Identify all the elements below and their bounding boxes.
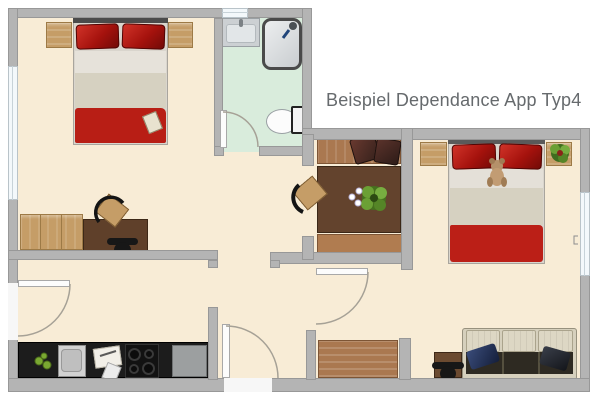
wall-hall-left-stub bbox=[208, 260, 218, 268]
bed-blanket-light bbox=[75, 73, 166, 108]
wall-hall-left bbox=[208, 307, 218, 380]
kitchen-sink bbox=[58, 345, 86, 377]
burner bbox=[142, 362, 155, 375]
headboard bbox=[73, 18, 168, 23]
nightstand bbox=[46, 22, 72, 48]
bed-blanket-light bbox=[450, 188, 543, 225]
window-bathroom bbox=[222, 8, 248, 18]
wall-bedroom-right-left bbox=[401, 128, 413, 270]
bed-pillow bbox=[76, 23, 120, 49]
wall-bottom bbox=[8, 378, 590, 392]
wall-dining-hall bbox=[270, 252, 407, 264]
nightstand-with-plant bbox=[546, 142, 572, 166]
door-leaf-bathroom bbox=[220, 110, 227, 148]
wall-dining-left-upper bbox=[302, 134, 314, 166]
wall-bedroom-living bbox=[8, 250, 218, 260]
sofa-back-cushion bbox=[502, 330, 536, 352]
door-leaf-hall-sofa bbox=[316, 268, 368, 275]
dresser bbox=[20, 214, 83, 250]
window-left bbox=[8, 66, 18, 200]
washbasin bbox=[222, 18, 260, 47]
window-right bbox=[580, 192, 590, 276]
door-leaf-entrance bbox=[222, 324, 230, 378]
wooden-bench-vestibule bbox=[318, 340, 398, 378]
wall-stub-sofa bbox=[399, 338, 411, 380]
bed-blanket-red bbox=[450, 225, 543, 262]
counter-end-unit bbox=[172, 345, 207, 377]
shower bbox=[262, 18, 302, 70]
bed-sheet bbox=[450, 169, 543, 188]
bed-pillow bbox=[499, 143, 543, 169]
wall-top bbox=[8, 8, 312, 18]
burner bbox=[144, 349, 154, 359]
double-bed-right bbox=[448, 140, 545, 264]
faucet bbox=[239, 19, 243, 27]
bed-pillow bbox=[122, 23, 166, 49]
double-bed-left bbox=[73, 18, 168, 145]
nightstand bbox=[168, 22, 193, 48]
wall-hall-sofa bbox=[306, 330, 316, 380]
bed-sheet bbox=[75, 51, 166, 73]
burner bbox=[128, 348, 141, 361]
dining-table bbox=[317, 166, 401, 233]
door-leaf-terrace bbox=[18, 280, 70, 287]
wall-top-right-block bbox=[302, 128, 590, 140]
wall-dining-hall-cap bbox=[270, 260, 280, 268]
door-opening-entrance bbox=[224, 378, 272, 392]
wall-dining-left-lower bbox=[302, 236, 314, 260]
wall-outer-bath-right bbox=[302, 8, 312, 138]
floorplan-canvas: Beispiel Dependance App Typ4 bbox=[0, 0, 600, 400]
burner bbox=[129, 364, 139, 374]
bed-pillow bbox=[452, 143, 497, 170]
bench-cushion bbox=[373, 137, 402, 166]
nightstand bbox=[420, 142, 447, 166]
plan-title: Beispiel Dependance App Typ4 bbox=[326, 90, 581, 111]
door-opening-terrace bbox=[8, 283, 18, 340]
